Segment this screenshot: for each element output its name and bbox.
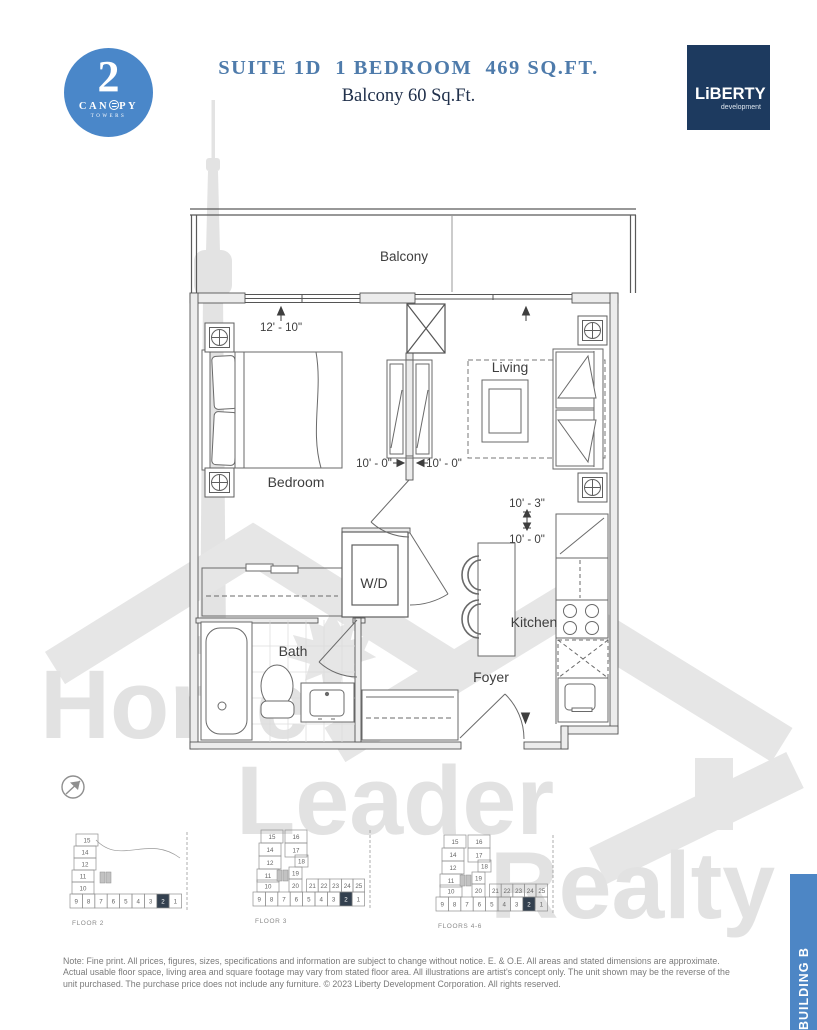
svg-text:1: 1 <box>174 898 178 905</box>
keyplate-floor2: 1514121110987654321 FLOOR 2 <box>66 830 192 927</box>
svg-text:23: 23 <box>515 888 522 895</box>
svg-text:18: 18 <box>481 863 488 870</box>
liberty-development-logo: LiBERTY development <box>687 45 770 130</box>
svg-text:6: 6 <box>295 896 299 903</box>
label-foyer: Foyer <box>473 669 509 685</box>
keyplate-floor3-drawing: 151614171218111910202122232425987654321 <box>249 828 375 912</box>
label-bath: Bath <box>279 643 308 659</box>
canopy-logo-towers: TOWERS <box>64 114 153 119</box>
svg-text:25: 25 <box>538 888 545 895</box>
disclaimer-line-1: Note: Fine print. All prices, figures, s… <box>63 956 769 967</box>
label-wd: W/D <box>360 575 387 591</box>
svg-text:1: 1 <box>540 901 544 908</box>
svg-text:15: 15 <box>269 834 276 841</box>
svg-text:7: 7 <box>99 898 103 905</box>
svg-text:20: 20 <box>292 883 299 890</box>
svg-text:8: 8 <box>270 896 274 903</box>
svg-text:2: 2 <box>527 901 531 908</box>
toilet <box>261 665 294 718</box>
dim-kitchen-depth: 10' - 3" <box>509 498 545 510</box>
svg-text:19: 19 <box>292 870 299 877</box>
svg-text:15: 15 <box>452 839 459 846</box>
svg-text:7: 7 <box>465 901 469 908</box>
watermark-graphics: Home Leader Realty <box>40 100 795 939</box>
svg-text:17: 17 <box>476 852 483 859</box>
liberty-name: LiBERTY <box>695 85 770 104</box>
svg-text:21: 21 <box>492 888 499 895</box>
svg-text:8: 8 <box>453 901 457 908</box>
svg-text:7: 7 <box>282 896 286 903</box>
svg-text:9: 9 <box>257 896 261 903</box>
keyplate-floors46: 151614171218111910202122232425987654321 … <box>432 833 558 930</box>
svg-text:9: 9 <box>440 901 444 908</box>
keyplate-floors46-drawing: 151614171218111910202122232425987654321 <box>432 833 558 917</box>
bathtub <box>201 622 252 740</box>
svg-text:3: 3 <box>332 896 336 903</box>
svg-text:12: 12 <box>82 861 89 868</box>
svg-text:11: 11 <box>265 873 272 880</box>
svg-text:25: 25 <box>355 883 362 890</box>
svg-text:11: 11 <box>448 878 455 885</box>
svg-text:4: 4 <box>136 898 140 905</box>
suite-subtitle: Balcony 60 Sq.Ft. <box>130 86 687 107</box>
building-label: BUILDING B <box>797 884 811 1030</box>
svg-text:2: 2 <box>161 898 165 905</box>
svg-text:3: 3 <box>149 898 153 905</box>
label-kitchen: Kitchen <box>511 614 558 630</box>
svg-text:9: 9 <box>74 898 78 905</box>
liberty-sub: development <box>687 104 761 111</box>
keyplate-floor3-label: FLOOR 3 <box>255 918 375 925</box>
dim-hall-left: 10' - 0" <box>356 458 392 470</box>
disclaimer-line-2: Actual usable floor space, living area a… <box>63 967 769 978</box>
building-label-bar: BUILDING B <box>790 874 817 1030</box>
chimney-watermark <box>695 758 733 830</box>
label-balcony: Balcony <box>380 249 428 264</box>
svg-text:15: 15 <box>84 837 91 844</box>
keyplate-floor2-drawing: 1514121110987654321 <box>66 830 192 914</box>
label-living: Living <box>492 359 529 375</box>
svg-text:14: 14 <box>82 849 89 856</box>
keyplate-floors46-label: FLOORS 4-6 <box>438 923 558 930</box>
kitchen-counters <box>556 514 608 724</box>
svg-text:14: 14 <box>267 847 274 854</box>
svg-text:17: 17 <box>293 847 300 854</box>
svg-text:14: 14 <box>450 852 457 859</box>
shaft <box>407 304 445 353</box>
svg-text:24: 24 <box>527 888 534 895</box>
dim-bedroom: 12' - 10" <box>260 322 302 334</box>
canopy-o-icon <box>109 100 119 110</box>
svg-text:8: 8 <box>87 898 91 905</box>
north-compass-icon <box>62 776 84 798</box>
label-bedroom: Bedroom <box>268 474 325 490</box>
svg-text:21: 21 <box>309 883 316 890</box>
sofa <box>553 349 603 469</box>
dim-kitchen-width: 10' - 0" <box>509 534 545 546</box>
svg-text:6: 6 <box>478 901 482 908</box>
svg-text:10: 10 <box>265 883 272 890</box>
svg-text:24: 24 <box>344 883 351 890</box>
svg-text:16: 16 <box>476 839 483 846</box>
canopy-name-left: CAN <box>79 101 109 112</box>
svg-text:16: 16 <box>293 834 300 841</box>
svg-text:18: 18 <box>298 858 305 865</box>
dim-hall-right: 10' - 0" <box>426 458 462 470</box>
disclaimer-line-3: unit purchased. The purchase price does … <box>63 979 769 990</box>
svg-text:12: 12 <box>267 860 274 867</box>
svg-text:22: 22 <box>321 883 328 890</box>
bath-vanity <box>301 683 354 722</box>
svg-text:10: 10 <box>448 888 455 895</box>
svg-text:5: 5 <box>124 898 128 905</box>
svg-text:5: 5 <box>490 901 494 908</box>
keyplate-floor2-label: FLOOR 2 <box>72 920 192 927</box>
svg-text:1: 1 <box>357 896 361 903</box>
svg-text:4: 4 <box>319 896 323 903</box>
svg-text:22: 22 <box>504 888 511 895</box>
keyplate-floor3: 151614171218111910202122232425987654321 … <box>249 828 375 925</box>
svg-text:23: 23 <box>332 883 339 890</box>
suite-title: SUITE 1D 1 BEDROOM 469 SQ.FT. <box>130 57 687 80</box>
floorplan-page: 2 CANPY TOWERS SUITE 1D 1 BEDROOM 469 SQ… <box>0 0 817 1030</box>
kitchen-island <box>478 543 515 656</box>
suite-header: SUITE 1D 1 BEDROOM 469 SQ.FT. Balcony 60… <box>130 57 687 107</box>
svg-text:12: 12 <box>450 865 457 872</box>
svg-text:19: 19 <box>475 875 482 882</box>
svg-text:10: 10 <box>80 885 87 892</box>
svg-text:5: 5 <box>307 896 311 903</box>
svg-text:4: 4 <box>502 901 506 908</box>
svg-text:3: 3 <box>515 901 519 908</box>
tv-console <box>482 380 528 442</box>
svg-text:11: 11 <box>80 873 87 880</box>
svg-text:2: 2 <box>344 896 348 903</box>
svg-text:6: 6 <box>112 898 116 905</box>
svg-text:20: 20 <box>475 888 482 895</box>
foyer-closet <box>362 690 458 740</box>
disclaimer-text: Note: Fine print. All prices, figures, s… <box>63 956 769 990</box>
